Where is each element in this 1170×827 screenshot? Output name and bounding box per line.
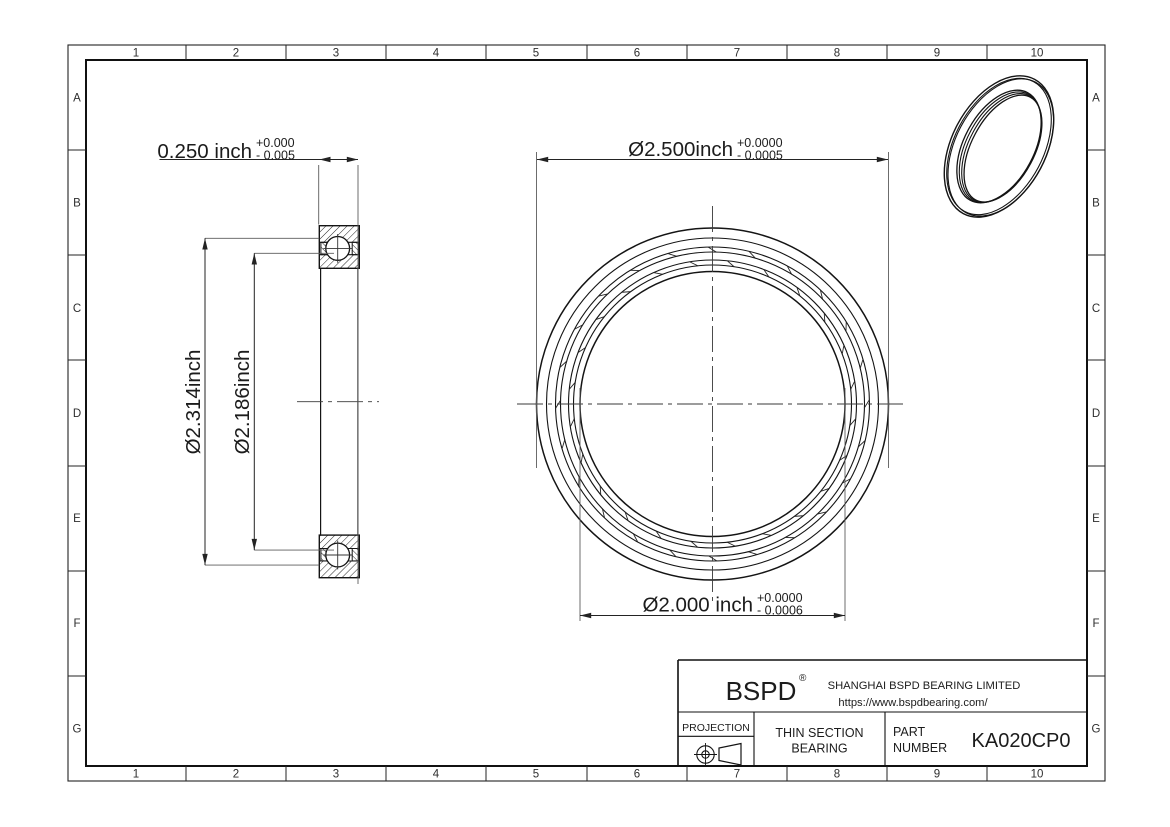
column-label: 3 (333, 48, 339, 60)
row-label: D (1092, 408, 1100, 420)
column-label: 6 (634, 769, 640, 781)
company-name: SHANGHAI BSPD BEARING LIMITED (828, 680, 1021, 692)
row-label: B (1092, 198, 1100, 210)
row-label: A (1092, 93, 1100, 105)
cage-section (352, 549, 358, 561)
product-name-line1: THIN SECTION (775, 726, 863, 740)
row-label: E (1092, 513, 1100, 525)
column-label: 9 (934, 48, 940, 60)
product-name-line2: BEARING (791, 742, 847, 756)
column-label: 8 (834, 48, 840, 60)
row-label: E (73, 513, 81, 525)
section-outer-race-dim: Ø2.314inch (182, 350, 205, 455)
column-label: 10 (1031, 48, 1044, 60)
column-label: 9 (934, 769, 940, 781)
section-view: 0.250 inch +0.000 - 0.005 Ø2.314inch Ø2.… (157, 136, 379, 584)
column-label: 10 (1031, 769, 1044, 781)
title-block: BSPD ® SHANGHAI BSPD BEARING LIMITED htt… (678, 660, 1087, 766)
company-website: https://www.bspdbearing.com/ (838, 697, 988, 709)
column-label: 7 (734, 48, 740, 60)
front-od-tol-minus: - 0.0005 (737, 149, 783, 163)
section-width-tol-minus: - 0.005 (256, 149, 295, 163)
column-label: 7 (734, 769, 740, 781)
iso-view (922, 57, 1076, 235)
first-angle-projection-icon (694, 743, 741, 766)
part-number: KA020CP0 (972, 730, 1071, 752)
part-label-line1: PART (893, 725, 926, 739)
row-label: C (1092, 303, 1100, 315)
row-label: C (73, 303, 81, 315)
column-label: 6 (634, 48, 640, 60)
column-label: 8 (834, 769, 840, 781)
column-label: 5 (533, 48, 539, 60)
projection-label: PROJECTION (682, 722, 750, 734)
part-label-line2: NUMBER (893, 741, 947, 755)
row-label: B (73, 198, 81, 210)
front-bore-tol-minus: - 0.0006 (757, 604, 803, 618)
company-logo: BSPD (726, 676, 797, 706)
drawing-sheet: 1 2 3 4 5 6 7 8 9 10 1 2 3 4 5 6 7 8 9 1… (0, 0, 1170, 827)
column-label: 4 (433, 48, 440, 60)
column-label: 2 (233, 769, 239, 781)
row-label: A (73, 93, 81, 105)
row-label: D (73, 408, 81, 420)
column-label: 5 (533, 769, 539, 781)
section-width-dim: 0.250 inch (157, 140, 252, 163)
column-label: 2 (233, 48, 239, 60)
section-inner-race-dim: Ø2.186inch (231, 350, 254, 455)
column-label: 1 (133, 769, 139, 781)
front-od-dim: Ø2.500inch (628, 138, 733, 161)
top-grid-ticks (186, 45, 987, 60)
bottom-grid-ticks (186, 766, 987, 781)
row-label: F (1092, 618, 1099, 630)
registered-trademark: ® (799, 673, 807, 684)
column-label: 1 (133, 48, 139, 60)
row-label: G (1092, 723, 1101, 735)
row-label: G (73, 723, 82, 735)
column-label: 3 (333, 769, 339, 781)
cage-section (352, 242, 358, 254)
column-label: 4 (433, 769, 440, 781)
row-label: F (73, 618, 80, 630)
front-view: Ø2.500inch +0.0000 - 0.0005 Ø2.000 inch … (517, 136, 908, 621)
front-bore-dim: Ø2.000 inch (642, 594, 753, 617)
engineering-drawing: 1 2 3 4 5 6 7 8 9 10 1 2 3 4 5 6 7 8 9 1… (0, 0, 1170, 827)
